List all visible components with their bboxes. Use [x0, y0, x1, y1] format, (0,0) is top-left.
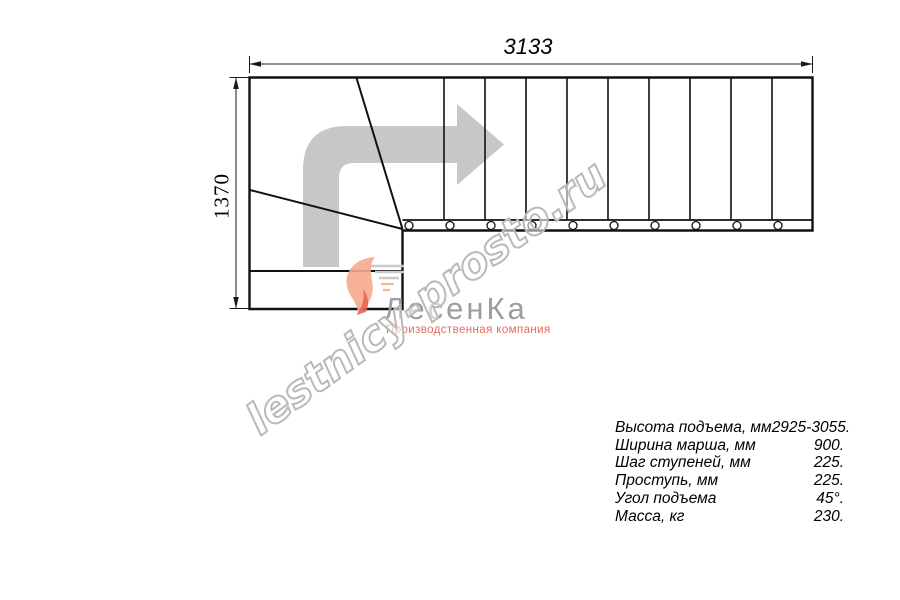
spec-value: 225. [814, 472, 844, 490]
spec-row: Ширина марша, мм 900. [615, 437, 844, 455]
spec-label: Шаг ступеней, мм [615, 454, 751, 472]
spec-value: 900. [814, 437, 844, 455]
spec-value: 2925-3055. [772, 419, 850, 437]
spec-row: Угол подъема 45°. [615, 490, 844, 508]
spec-label: Масса, кг [615, 508, 684, 526]
spec-value: 45°. [816, 490, 844, 508]
baluster-circles [405, 222, 782, 230]
dimension-width-label: 3133 [468, 34, 588, 60]
spec-row: Шаг ступеней, мм 225. [615, 454, 844, 472]
stair-drawing-canvas: 3133 1370 ЛесенКа Производственная компа… [0, 0, 900, 600]
dimension-height-label: 1370 [210, 173, 235, 219]
spec-value: 230. [814, 508, 844, 526]
spec-row: Масса, кг 230. [615, 508, 844, 526]
spec-row: Высота подъема, мм 2925-3055. [615, 419, 844, 437]
spec-row: Проступь, мм 225. [615, 472, 844, 490]
spec-label: Высота подъема, мм [615, 419, 772, 437]
spec-label: Угол подъема [615, 490, 716, 508]
specs-table: Высота подъема, мм 2925-3055. Ширина мар… [615, 419, 844, 525]
spec-label: Ширина марша, мм [615, 437, 756, 455]
spec-label: Проступь, мм [615, 472, 718, 490]
spec-value: 225. [814, 454, 844, 472]
